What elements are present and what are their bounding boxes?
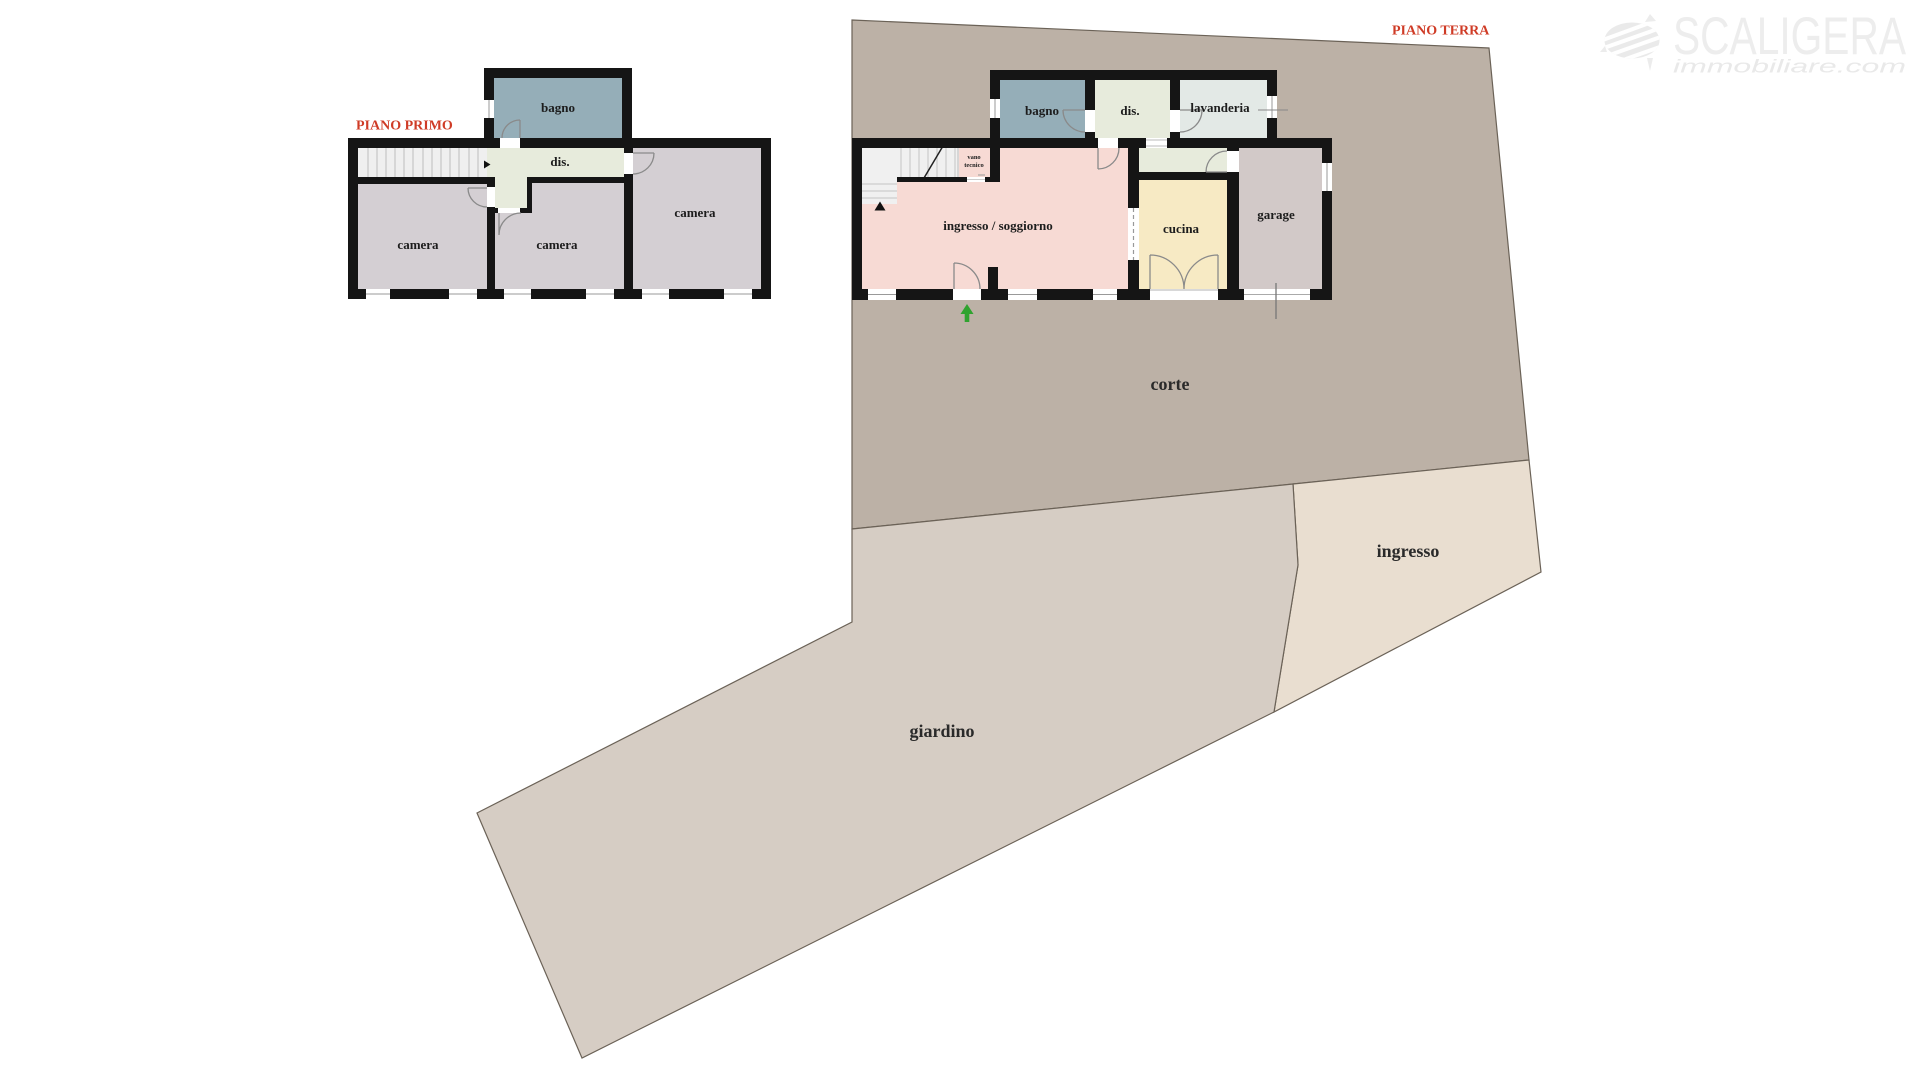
svg-text:bagno: bagno (541, 100, 575, 115)
svg-text:immobiliare.com: immobiliare.com (1673, 57, 1906, 77)
svg-text:lavanderia: lavanderia (1190, 100, 1250, 115)
svg-text:ingresso / soggiorno: ingresso / soggiorno (943, 218, 1053, 233)
svg-text:ingresso: ingresso (1377, 541, 1440, 561)
svg-text:giardino: giardino (909, 721, 974, 741)
svg-text:cucina: cucina (1163, 221, 1200, 236)
svg-text:vano: vano (967, 154, 980, 161)
svg-text:dis.: dis. (550, 154, 569, 169)
svg-text:corte: corte (1151, 374, 1190, 394)
svg-text:camera: camera (674, 205, 716, 220)
svg-text:tecnico: tecnico (964, 162, 984, 169)
svg-text:dis.: dis. (1120, 103, 1139, 118)
svg-text:camera: camera (397, 237, 439, 252)
svg-text:bagno: bagno (1025, 103, 1059, 118)
svg-text:camera: camera (536, 237, 578, 252)
svg-text:garage: garage (1257, 207, 1295, 222)
svg-text:PIANO PRIMO: PIANO PRIMO (356, 119, 453, 134)
svg-text:PIANO TERRA: PIANO TERRA (1392, 24, 1490, 39)
